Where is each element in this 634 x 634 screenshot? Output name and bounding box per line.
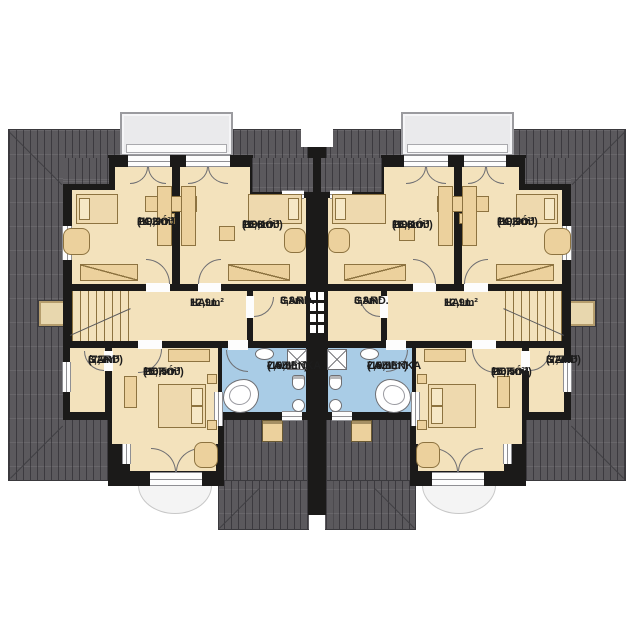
room-area-total: (16,5m²) — [491, 366, 532, 379]
room-area-total: (10,8m²) — [267, 360, 308, 373]
room-area-total: (19,1m²) — [392, 219, 433, 232]
room-area-total: (7,7m²) — [546, 354, 581, 367]
room-area-total: (19,9m²) — [497, 216, 538, 229]
room-area: 12,9m² — [444, 297, 478, 310]
room-area: 3,8m² — [280, 295, 308, 308]
room-area-total: (16,5m²) — [143, 366, 184, 379]
floor-plan: POKÓJ 14,2m² (19,9m²) POKÓJ 16,6m² (19,1… — [0, 0, 634, 634]
room-area-total: (7,7m²) — [88, 354, 123, 367]
room-area: 3,8m² — [354, 295, 382, 308]
room-area-total: (19,9m²) — [137, 216, 178, 229]
room-area-total: (19,1m²) — [242, 219, 283, 232]
room-area: 12,9m² — [190, 297, 224, 310]
room-area-total: (10,8m²) — [367, 360, 408, 373]
labels-layer: POKÓJ 14,2m² (19,9m²) POKÓJ 16,6m² (19,1… — [0, 0, 634, 634]
